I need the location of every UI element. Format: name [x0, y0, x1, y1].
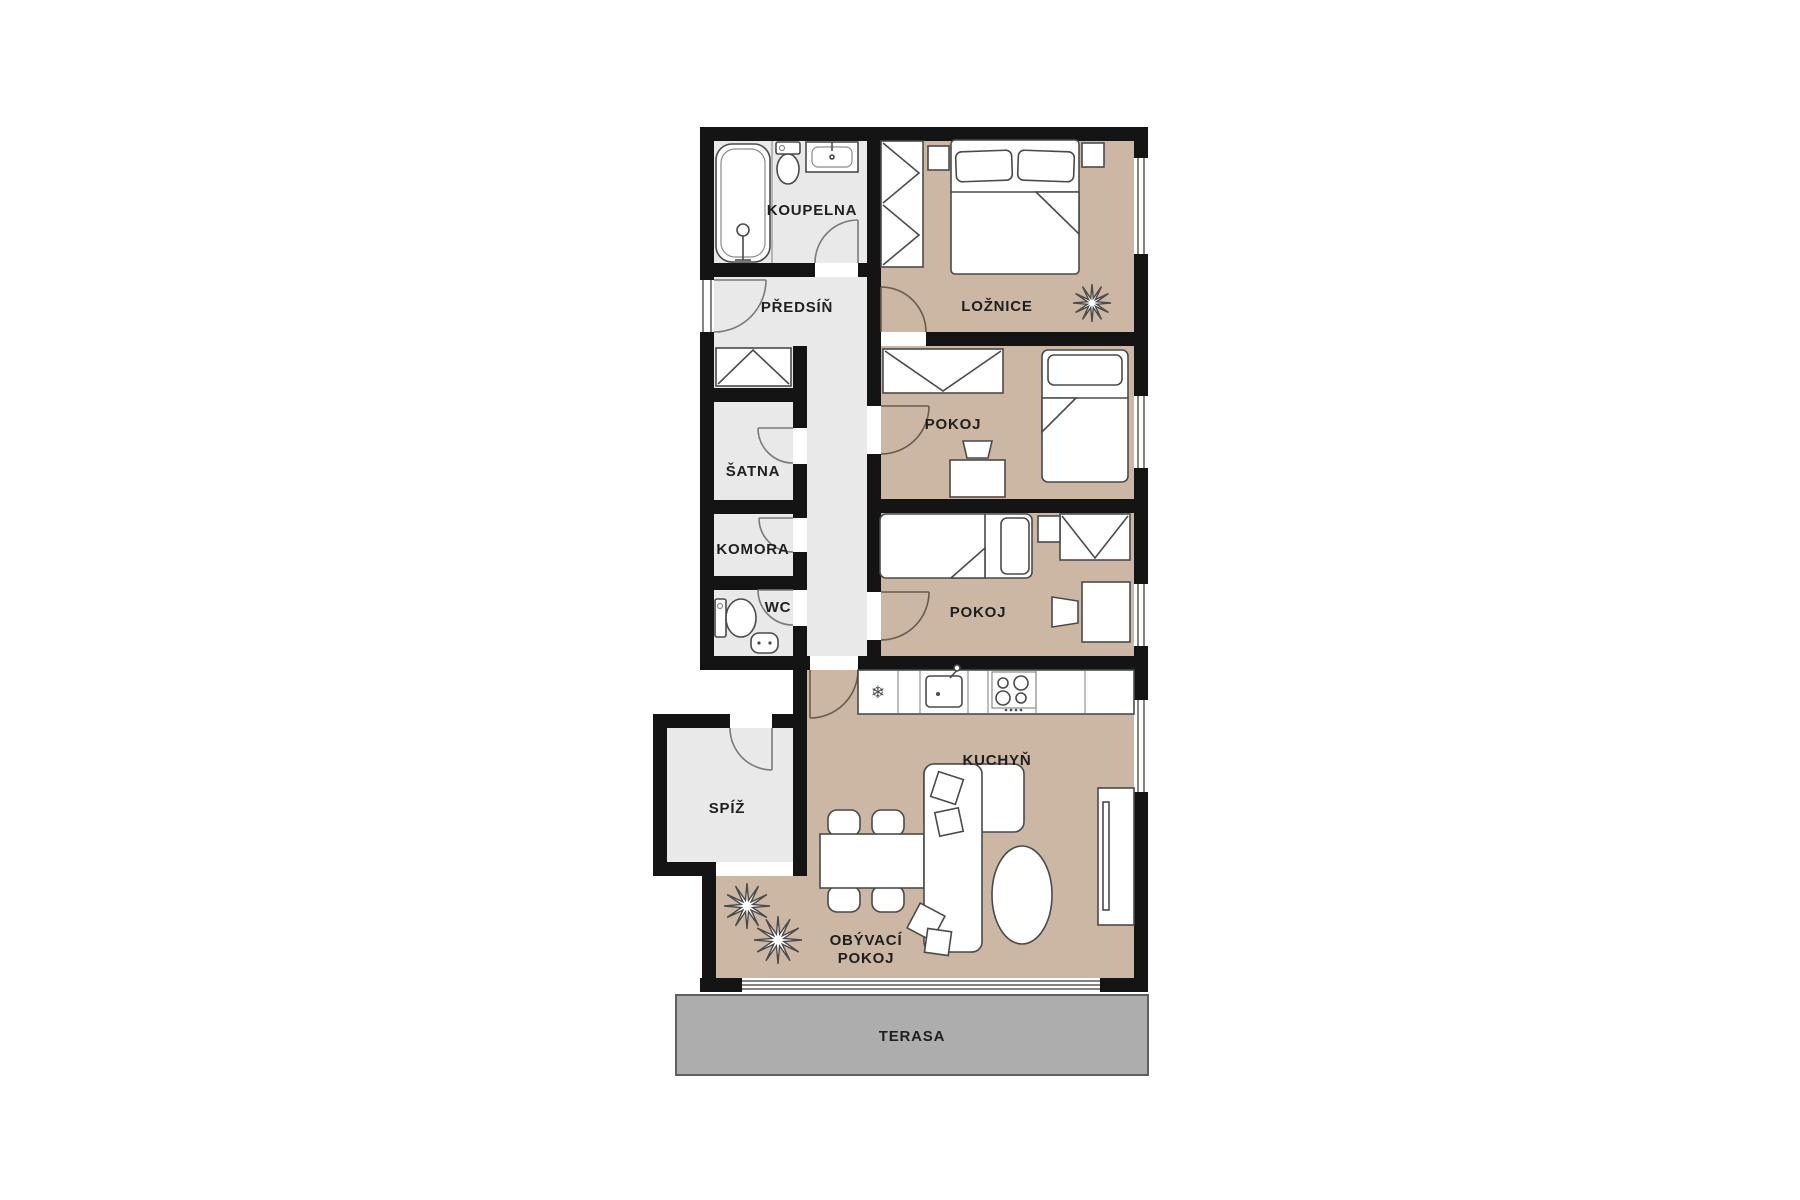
chair-icon — [872, 810, 904, 836]
rug-icon — [992, 846, 1052, 944]
pokoj2-wardrobe-icon — [1060, 514, 1130, 560]
chair-icon — [828, 810, 860, 836]
label-kuchyn: KUCHYŇ — [963, 751, 1032, 769]
bathroom-toilet-icon — [776, 142, 800, 184]
satna-floor — [714, 402, 793, 500]
spiz-door-opening — [730, 714, 772, 728]
floor-plan-page: ❄ — [0, 0, 1800, 1200]
wc-sink-icon — [751, 633, 778, 653]
label-wc: WC — [765, 599, 792, 616]
wall-outer-top — [700, 127, 1148, 141]
komora-door-opening — [793, 518, 807, 552]
wall-kitchen-top — [700, 656, 1148, 670]
chair-icon — [828, 886, 860, 912]
label-predsin: PŘEDSÍŇ — [761, 298, 833, 316]
label-pokoj1: POKOJ — [925, 416, 982, 433]
label-pokoj2: POKOJ — [950, 604, 1007, 621]
wall-spiz-right — [793, 670, 807, 876]
wc-door-opening — [793, 590, 807, 626]
entrance-door-opening — [700, 280, 714, 332]
pillow-icon — [924, 928, 951, 955]
wall-bathroom-bedroom — [867, 127, 881, 346]
single-bed-icon — [880, 514, 1032, 578]
nightstand-icon — [1038, 516, 1060, 542]
nightstand-icon — [1082, 143, 1104, 167]
kitchen-window-icon — [1134, 700, 1148, 792]
pokoj2-door-opening — [867, 592, 881, 640]
wall-pokoj-divider — [881, 499, 1148, 513]
label-komora: KOMORA — [716, 541, 789, 558]
bathroom-door-opening — [815, 263, 858, 277]
spiz-floor — [667, 728, 793, 862]
kitchen-door-opening — [810, 656, 858, 670]
bedroom-wardrobe-icon — [881, 141, 923, 267]
wall-niche-bottom — [700, 388, 807, 402]
pillow-icon — [935, 808, 963, 836]
label-terasa: TERASA — [879, 1028, 945, 1045]
label-spiz: SPÍŽ — [709, 799, 746, 817]
wall-living-left — [702, 862, 716, 992]
kitchen-counter-icon: ❄ — [858, 665, 1134, 714]
tv-icon — [1103, 802, 1109, 910]
pokoj1-window-icon — [1134, 396, 1148, 468]
pokoj1-door-opening — [867, 406, 881, 454]
label-koupelna: KOUPELNA — [767, 202, 858, 219]
pokoj1-wardrobe-icon — [883, 349, 1003, 393]
fridge-icon: ❄ — [871, 683, 885, 703]
single-bed-icon — [1042, 350, 1128, 482]
satna-door-opening — [793, 428, 807, 464]
tv-sideboard-icon — [1098, 788, 1134, 925]
floor-plan-canvas: ❄ — [0, 0, 1800, 1200]
corridor-floor — [807, 346, 867, 670]
nightstand-icon — [928, 146, 949, 170]
hall-closet-icon — [716, 348, 791, 386]
label-satna: ŠATNA — [726, 462, 781, 480]
double-bed-icon — [951, 140, 1079, 274]
pokoj2-window-icon — [1134, 584, 1148, 646]
wall-satna-bottom — [700, 500, 807, 514]
bathtub-icon — [716, 144, 770, 262]
label-obyvaci-line2: POKOJ — [838, 950, 895, 967]
bedroom-window-icon — [1134, 158, 1148, 254]
wc-toilet-icon — [715, 599, 756, 637]
bedroom-door-opening — [881, 332, 926, 346]
wall-spiz-left — [653, 714, 667, 876]
wall-outer-right — [1134, 127, 1148, 992]
terrace-window-icon — [742, 978, 1100, 992]
label-loznice: LOŽNICE — [961, 297, 1032, 315]
bathroom-sink-icon — [806, 142, 858, 172]
wall-komora-bottom — [700, 576, 807, 590]
chair-icon — [872, 886, 904, 912]
stove-icon — [992, 672, 1036, 711]
label-obyvaci-line1: OBÝVACÍ — [830, 931, 903, 949]
